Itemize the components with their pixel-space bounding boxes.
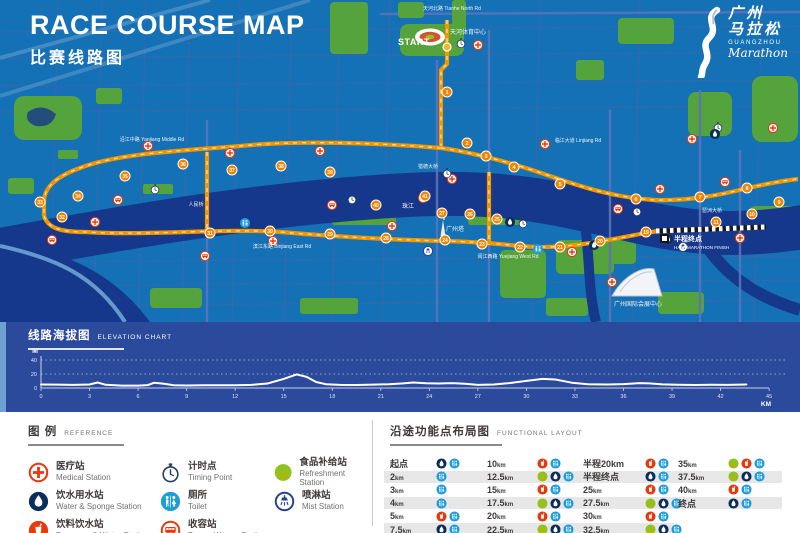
svg-text:31: 31 <box>207 231 213 237</box>
svg-text:33: 33 <box>572 394 578 400</box>
svg-text:9: 9 <box>777 200 780 206</box>
title-underline <box>28 444 124 446</box>
medical-station-icon <box>567 247 576 256</box>
beverage-station-icon <box>436 511 447 522</box>
layout-row-icons <box>537 484 561 495</box>
map-title-block: RACE COURSE MAP 比赛线路图 <box>30 10 305 68</box>
layout-row-icons <box>728 471 765 482</box>
svg-text:21: 21 <box>378 394 384 400</box>
medical-station-icon <box>225 148 234 157</box>
title-underline <box>390 444 502 446</box>
svg-text:22: 22 <box>517 245 523 251</box>
mist-station-icon <box>423 246 432 255</box>
km-marker-41: 41 <box>420 191 430 201</box>
legend-label-zh: 计时点 <box>188 462 232 473</box>
water-station-icon <box>658 524 669 533</box>
svg-text:9: 9 <box>185 394 188 400</box>
medical-station-icon <box>687 134 696 143</box>
map-place-label: 人民桥 <box>188 201 203 208</box>
layout-row-label: 15km <box>487 485 533 495</box>
layout-row-label: 半程终点 <box>583 470 641 483</box>
svg-text:30: 30 <box>267 229 273 235</box>
map-place-label: 猎德大桥 <box>418 163 438 170</box>
km-marker-39: 39 <box>325 167 335 177</box>
broom-station-icon <box>327 200 336 209</box>
km-marker-8: 8 <box>742 183 752 193</box>
elevation-title-en: ELEVATION CHART <box>98 334 173 341</box>
medical-station-icon <box>28 462 49 483</box>
x-axis-unit: KM <box>761 401 771 408</box>
medical-station-icon <box>473 40 482 49</box>
half-finish-label-en: HALF MARATHON FINISH <box>674 245 729 250</box>
medical-station-icon <box>540 139 549 148</box>
water-station-icon <box>645 471 656 482</box>
toilet-station-icon <box>436 484 447 495</box>
svg-text:32: 32 <box>59 215 65 221</box>
toilet-station-icon <box>658 511 669 522</box>
toilet-station-icon <box>658 484 669 495</box>
layout-row: 37.5km <box>678 470 765 483</box>
km-marker-40: 40 <box>371 200 381 210</box>
refreshment-station-icon <box>645 498 656 509</box>
refreshment-station-icon <box>728 471 739 482</box>
medical-station-icon <box>607 277 616 286</box>
km-marker-11: 11 <box>711 217 721 227</box>
km-marker-7: 7 <box>695 192 705 202</box>
layout-row-label: 终点 <box>678 497 724 510</box>
toilet-station-icon <box>658 458 669 469</box>
svg-text:2: 2 <box>465 141 468 147</box>
km-marker-28: 28 <box>381 233 391 243</box>
toilet-station-icon <box>550 458 561 469</box>
refreshment-station-icon <box>645 524 656 533</box>
svg-text:8: 8 <box>745 186 748 192</box>
elevation-title-zh: 线路海拔图 <box>28 327 91 343</box>
legend-item-mist: 喷淋站 Mist Station <box>274 491 363 512</box>
svg-text:1: 1 <box>445 90 448 96</box>
layout-row-label: 27.5km <box>583 498 641 508</box>
toilet-station-icon <box>563 524 574 533</box>
km-marker-38: 38 <box>276 161 286 171</box>
legend-label-zh: 饮水用水站 <box>56 491 142 502</box>
svg-text:39: 39 <box>669 394 675 400</box>
map-place-label: 沿江中路 Yanjiang Middle Rd <box>120 136 185 143</box>
layout-row: 3km <box>390 483 447 496</box>
toilet-station-icon <box>436 498 447 509</box>
legend-label-zh: 收容站 <box>188 520 266 531</box>
km-marker-34: 34 <box>73 191 83 201</box>
functional-layout-table: 起点 2km 3km <box>390 457 788 533</box>
km-marker-23: 23 <box>477 239 487 249</box>
km-marker-4: 4 <box>509 162 519 172</box>
medical-station-icon <box>655 184 664 193</box>
km-marker-6: 6 <box>631 194 641 204</box>
map-place-label: 珠江 <box>402 202 414 210</box>
svg-text:27: 27 <box>439 211 445 217</box>
layout-row-label: 3km <box>390 485 432 495</box>
start-label: START <box>398 37 430 47</box>
water-station-icon <box>741 471 752 482</box>
svg-text:3: 3 <box>88 394 91 400</box>
layout-row-icons <box>728 458 765 469</box>
svg-text:23: 23 <box>479 242 485 248</box>
toilet-station-icon <box>240 218 250 228</box>
km-marker-5: 5 <box>555 179 565 189</box>
beverage-station-icon <box>645 511 656 522</box>
map-place-label: 临江大道 Linjiang Rd <box>555 137 602 144</box>
svg-text:39: 39 <box>327 170 333 176</box>
svg-text:41: 41 <box>422 194 428 200</box>
toilet-station-icon <box>658 471 669 482</box>
map-place-label: 琶洲大桥 <box>702 207 722 214</box>
svg-text:40: 40 <box>373 203 379 209</box>
toilet-station-icon <box>550 511 561 522</box>
refreshment-station-icon <box>537 498 548 509</box>
layout-row-icons <box>436 511 460 522</box>
layout-row-label: 35km <box>678 459 724 469</box>
layout-row: 终点 <box>678 497 752 510</box>
page-title: RACE COURSE MAP <box>30 10 305 41</box>
svg-text:25: 25 <box>494 217 500 223</box>
toilet-station-icon <box>563 471 574 482</box>
legend-item-water: 饮水用水站 Water & Sponge Station <box>28 491 160 512</box>
svg-text:15: 15 <box>281 394 287 400</box>
layout-row-icons <box>537 511 561 522</box>
functional-layout-section: 沿途功能点布局图 FUNCTIONAL LAYOUT 起点 2km <box>390 423 788 533</box>
layout-row-label: 10km <box>487 459 533 469</box>
layout-row: 20km <box>487 510 561 523</box>
toilet-station-icon <box>449 458 460 469</box>
water-station-icon <box>550 471 561 482</box>
functional-title-en: FUNCTIONAL LAYOUT <box>497 430 583 437</box>
svg-text:6: 6 <box>634 197 637 203</box>
svg-text:37: 37 <box>229 168 235 174</box>
layout-row: 半程终点 <box>583 470 669 483</box>
layout-row: 15km <box>487 483 561 496</box>
elevation-title-block: 线路海拔图 ELEVATION CHART <box>28 327 172 350</box>
svg-text:10: 10 <box>749 212 755 218</box>
legend-title-zh: 图 例 <box>28 423 57 439</box>
layout-row-label: 半程20km <box>583 457 641 470</box>
layout-row: 5km <box>390 510 460 523</box>
water-station-icon <box>505 217 515 227</box>
svg-text:21: 21 <box>557 245 563 251</box>
layout-row: 22.5km <box>487 523 574 533</box>
svg-text:18: 18 <box>329 394 335 400</box>
page-subtitle: 比赛线路图 <box>30 44 305 68</box>
svg-text:3: 3 <box>484 154 487 160</box>
svg-text:7: 7 <box>698 195 701 201</box>
guangzhou-marathon-logo: 广州 马拉松 GUANGZHOU Marathon <box>690 6 788 83</box>
legend-label-zh: 喷淋站 <box>302 491 344 502</box>
medical-station-icon <box>387 221 396 230</box>
race-course-map-poster: 1 2 3 4 5 6 7 8 9 10 11 19 20 2 <box>0 0 800 533</box>
layout-row-icons <box>645 498 682 509</box>
svg-text:12: 12 <box>232 394 238 400</box>
svg-text:36: 36 <box>180 162 186 168</box>
toilet-station-icon <box>563 498 574 509</box>
km-marker-35: 35 <box>120 171 130 181</box>
layout-row-label: 4km <box>390 498 432 508</box>
km-marker-27: 27 <box>437 208 447 218</box>
logo-en-1: GUANGZHOU <box>728 40 788 46</box>
beverage-station-icon <box>28 520 49 533</box>
layout-row: 25km <box>583 483 669 496</box>
layout-row: 4km <box>390 497 447 510</box>
km-marker-9: 9 <box>774 197 784 207</box>
layout-row-icons <box>436 458 460 469</box>
layout-row-icons <box>645 458 669 469</box>
layout-row-label: 37.5km <box>678 472 724 482</box>
refreshment-station-icon <box>274 462 292 483</box>
beverage-station-icon <box>537 484 548 495</box>
km-marker-19: 19 <box>641 227 651 237</box>
broom-station-icon <box>613 204 622 213</box>
logo-en-2: Marathon <box>728 47 788 60</box>
beverage-station-icon <box>645 458 656 469</box>
toilet-station-icon <box>754 471 765 482</box>
legend-item-medical: 医疗站 Medical Station <box>28 462 160 483</box>
toilet-station-icon <box>754 458 765 469</box>
legend-label-en: Water & Sponge Station <box>56 502 142 511</box>
km-marker-21: 21 <box>555 242 565 252</box>
water-station-icon <box>550 524 561 533</box>
svg-text:42: 42 <box>717 394 723 400</box>
beverage-station-icon <box>537 511 548 522</box>
map-place-label: 滨江东路 Binjiang East Rd <box>253 243 312 250</box>
water-station-icon <box>658 498 669 509</box>
refreshment-station-icon <box>537 524 548 533</box>
water-station-icon <box>436 524 447 533</box>
layout-row-label: 12.5km <box>487 472 533 482</box>
layout-row-icons <box>537 498 574 509</box>
map-place-label: 天河北路 Tianhe North Rd <box>423 5 481 12</box>
medical-station-icon <box>315 146 324 155</box>
layout-row: 17.5km <box>487 497 574 510</box>
svg-text:11: 11 <box>713 220 719 226</box>
km-marker-26: 26 <box>465 209 475 219</box>
layout-row-icons <box>537 524 574 533</box>
functional-title-zh: 沿途功能点布局图 <box>390 423 490 439</box>
legend-label-en: Medical Station <box>56 473 111 482</box>
svg-text:24: 24 <box>442 238 448 244</box>
elevation-line <box>41 374 746 385</box>
elevation-section: 02040M0369121518212427303336394245KM 线路海… <box>0 322 800 412</box>
svg-text:20: 20 <box>597 239 603 245</box>
km-marker-10: 10 <box>747 209 757 219</box>
km-marker-24: 24 <box>440 235 450 245</box>
layout-row: 2km <box>390 470 447 483</box>
layout-row-icons <box>537 471 574 482</box>
km-marker-32: 32 <box>57 212 67 222</box>
toilet-station-icon <box>449 511 460 522</box>
legend-item-toilet: 厕所 Toilet <box>160 491 274 512</box>
layout-row-label: 7.5km <box>390 525 432 533</box>
km-marker-22: 22 <box>515 242 525 252</box>
layout-row-icons <box>728 484 752 495</box>
beverage-station-icon <box>728 484 739 495</box>
km-marker-29: 29 <box>325 229 335 239</box>
layout-row-label: 5km <box>390 511 432 521</box>
svg-text:19: 19 <box>643 230 649 236</box>
svg-text:26: 26 <box>467 212 473 218</box>
layout-row-label: 20km <box>487 511 533 521</box>
broom-station-icon <box>160 520 181 533</box>
km-marker-3: 3 <box>481 151 491 161</box>
marathon-ribbon-icon <box>690 6 724 83</box>
half-finish-label-zh: 半程终点 <box>674 234 702 243</box>
toilet-station-icon <box>436 471 447 482</box>
layout-row: 10km <box>487 457 561 470</box>
layout-row-label: 40km <box>678 485 724 495</box>
toilet-station-icon <box>741 498 752 509</box>
layout-row: 32.5km <box>583 523 682 533</box>
layout-row: 40km <box>678 483 752 496</box>
layout-row-label: 32.5km <box>583 525 641 533</box>
toilet-station-icon <box>741 484 752 495</box>
layout-row-icons <box>537 458 561 469</box>
beverage-station-icon <box>537 458 548 469</box>
km-marker-25: 25 <box>492 214 502 224</box>
layout-row-label: 25km <box>583 485 641 495</box>
layout-row-label: 起点 <box>390 457 432 470</box>
toilet-station-icon <box>533 244 543 254</box>
legend-label-en: Timing Point <box>188 473 232 482</box>
layout-row: 30km <box>583 510 669 523</box>
layout-row-icons <box>645 471 669 482</box>
layout-row-label: 22.5km <box>487 525 533 533</box>
medical-station-icon <box>768 123 777 132</box>
km-marker-33: 33 <box>35 197 45 207</box>
beverage-station-icon <box>645 484 656 495</box>
broom-station-icon <box>113 195 122 204</box>
legend-section: 图 例 REFERENCE 医疗站 Medical Station 饮水用水站 … <box>28 423 363 533</box>
layout-row-icons <box>645 511 669 522</box>
layout-row-label: 30km <box>583 511 641 521</box>
layout-row-label: 17.5km <box>487 498 533 508</box>
legend-item-broom: 收容站 Broom Wagon Station <box>160 520 274 533</box>
refreshment-station-icon <box>728 458 739 469</box>
svg-text:20: 20 <box>31 372 37 378</box>
logo-zh-2: 马拉松 <box>728 22 788 38</box>
layout-row-icons <box>436 471 447 482</box>
svg-text:36: 36 <box>620 394 626 400</box>
svg-text:35: 35 <box>122 174 128 180</box>
layout-row-icons <box>645 484 669 495</box>
layout-row-icons <box>436 484 447 495</box>
broom-station-icon <box>720 177 729 186</box>
layout-row: 7.5km <box>390 523 460 533</box>
map-place-label: 广州塔 <box>446 225 464 233</box>
legend-label-en: Refreshment Station <box>299 469 363 487</box>
legend-item-beverage: 饮料饮水站 Beverage & Water Station <box>28 520 160 533</box>
toilet-station-icon <box>160 491 181 512</box>
svg-text:30: 30 <box>523 394 529 400</box>
broom-station-icon <box>47 235 56 244</box>
legend-grid: 医疗站 Medical Station 饮水用水站 Water & Sponge… <box>28 458 363 533</box>
water-station-icon <box>436 458 447 469</box>
toilet-station-icon <box>671 524 682 533</box>
legend-item-timing: 计时点 Timing Point <box>160 462 274 483</box>
broom-station-icon <box>200 251 209 260</box>
layout-row-icons <box>728 498 752 509</box>
logo-zh-1: 广州 <box>728 6 788 22</box>
svg-text:33: 33 <box>37 200 43 206</box>
medical-station-icon <box>735 233 744 242</box>
mist-station-icon <box>274 491 295 512</box>
map-place-label: 天河体育中心 <box>450 28 486 36</box>
km-marker-36: 36 <box>178 159 188 169</box>
svg-text:34: 34 <box>75 194 81 200</box>
bottom-section: 图 例 REFERENCE 医疗站 Medical Station 饮水用水站 … <box>0 412 800 533</box>
toilet-station-icon <box>449 524 460 533</box>
svg-text:29: 29 <box>327 232 333 238</box>
legend-label-zh: 医疗站 <box>56 462 111 473</box>
title-underline <box>28 348 124 350</box>
layout-row-label: 2km <box>390 472 432 482</box>
toilet-station-icon <box>550 484 561 495</box>
map-section: 1 2 3 4 5 6 7 8 9 10 11 19 20 2 <box>0 0 800 322</box>
medical-station-icon <box>90 217 99 226</box>
layout-row: 半程20km <box>583 457 669 470</box>
km-marker-2: 2 <box>462 138 472 148</box>
layout-row-icons <box>645 524 682 533</box>
layout-row: 12.5km <box>487 470 574 483</box>
logo-text: 广州 马拉松 GUANGZHOU Marathon <box>728 6 788 59</box>
svg-text:0: 0 <box>34 386 37 392</box>
water-station-icon <box>550 498 561 509</box>
svg-text:24: 24 <box>426 394 432 400</box>
km-marker-1: 1 <box>442 87 452 97</box>
km-marker-37: 37 <box>227 165 237 175</box>
timing-station-icon <box>160 462 181 483</box>
timing-station-icon <box>443 168 451 178</box>
beverage-station-icon <box>741 458 752 469</box>
layout-row-icons <box>436 524 460 533</box>
water-station-icon <box>710 129 720 139</box>
legend-title-en: REFERENCE <box>64 430 113 437</box>
legend-item-refreshment: 食品补给站 Refreshment Station <box>274 458 363 487</box>
svg-text:27: 27 <box>475 394 481 400</box>
water-station-icon <box>728 498 739 509</box>
refreshment-station-icon <box>537 471 548 482</box>
layout-row: 35km <box>678 457 765 470</box>
svg-text:6: 6 <box>137 394 140 400</box>
svg-text:28: 28 <box>383 236 389 242</box>
map-place-label: 广州国际会展中心 <box>614 300 662 308</box>
layout-row: 起点 <box>390 457 460 470</box>
km-marker-20: 20 <box>595 236 605 246</box>
layout-row: 27.5km <box>583 497 682 510</box>
map-place-label: 阅江西路 Yuejiang West Rd <box>477 253 538 260</box>
svg-text:40: 40 <box>31 358 37 364</box>
svg-text:38: 38 <box>278 164 284 170</box>
vertical-divider <box>372 420 373 526</box>
svg-text:5: 5 <box>558 182 561 188</box>
layout-row-icons <box>436 498 447 509</box>
km-marker-30: 30 <box>265 226 275 236</box>
legend-label-zh: 厕所 <box>188 491 207 502</box>
legend-label-en: Mist Station <box>302 502 344 511</box>
legend-label-zh: 饮料饮水站 <box>56 520 148 531</box>
legend-label-zh: 食品补给站 <box>299 458 363 469</box>
svg-text:45: 45 <box>766 394 772 400</box>
svg-text:0: 0 <box>39 394 42 400</box>
legend-label-en: Toilet <box>188 502 207 511</box>
water-station-icon <box>28 491 49 512</box>
km-marker-31: 31 <box>205 228 215 238</box>
